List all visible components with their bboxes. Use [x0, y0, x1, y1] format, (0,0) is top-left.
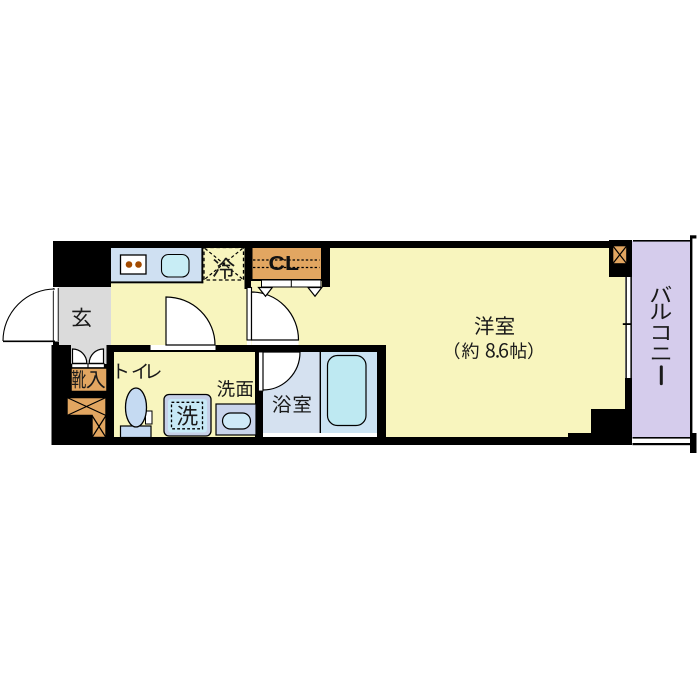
svg-text:CL: CL: [269, 252, 300, 275]
